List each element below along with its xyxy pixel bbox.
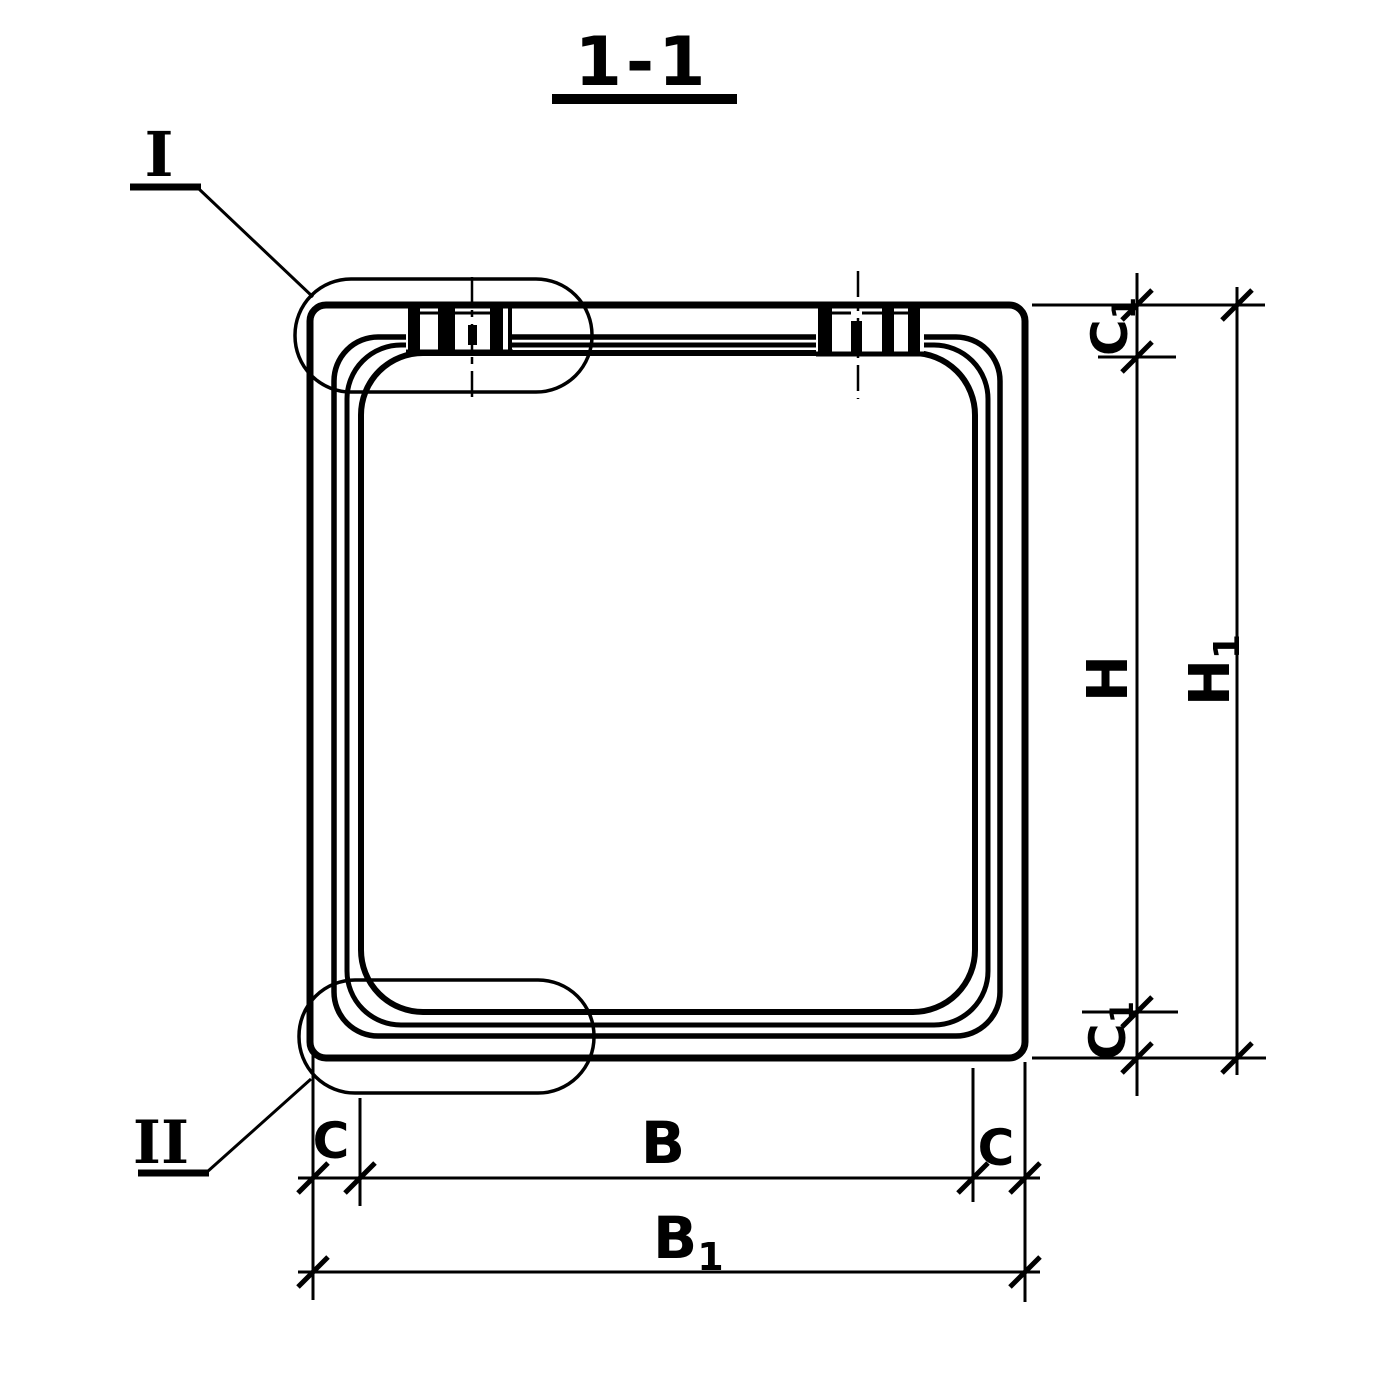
- key-center-dash: [851, 321, 862, 352]
- dim-label-c-right: C: [978, 1119, 1015, 1177]
- key-bar: [408, 306, 420, 352]
- page: { "colors": { "ink": "#000000", "paper":…: [0, 0, 1374, 1379]
- key-bar: [438, 306, 455, 352]
- dim-label-b: B: [641, 1109, 685, 1177]
- callout-label-1: I: [144, 118, 173, 191]
- callout-detail-2: II: [133, 1079, 311, 1178]
- section-title-text: 1-1: [575, 23, 710, 102]
- key-bar: [908, 306, 920, 354]
- dim-label-h: H: [1076, 655, 1141, 702]
- dim-label-h1: H1: [1178, 634, 1248, 706]
- outer-contour: [310, 305, 1025, 1058]
- key-recess-mask: [816, 310, 924, 355]
- callout-label-2: II: [133, 1108, 189, 1178]
- dim-label-c1-bottom: C1: [1079, 1001, 1141, 1060]
- section-1-1-drawing: I II C1 H: [0, 0, 1374, 1379]
- callout-detail-1: I: [130, 118, 313, 297]
- key-bar: [818, 306, 832, 354]
- section-title: 1-1: [552, 23, 737, 102]
- dim-label-b1: B1: [653, 1204, 724, 1279]
- key-bar: [490, 306, 503, 352]
- callout-leader-line: [207, 1079, 311, 1172]
- key-bar: [882, 306, 894, 354]
- callout-leader-line: [199, 189, 313, 297]
- link-body: [310, 305, 1025, 1058]
- drawing-sheet: I II C1 H: [0, 0, 1374, 1379]
- dim-label-c-left: C: [313, 1112, 350, 1170]
